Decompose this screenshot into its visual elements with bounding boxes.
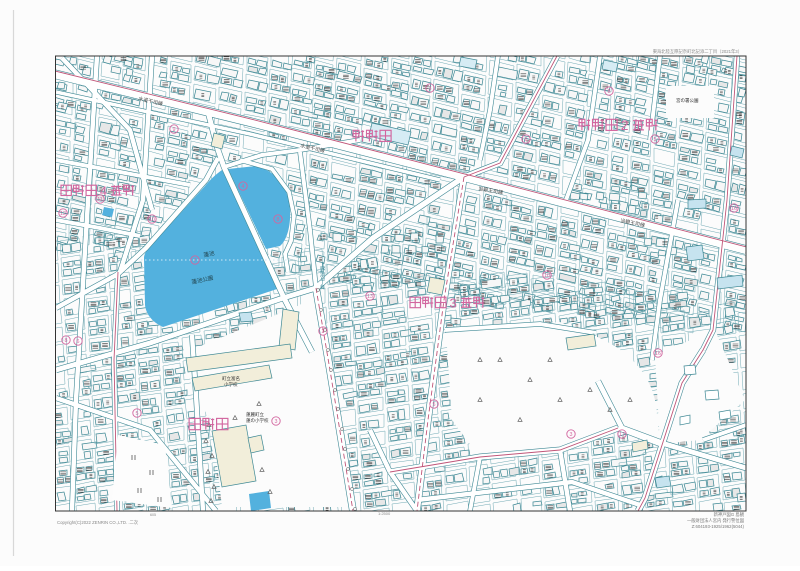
svg-text:1:2500: 1:2500 — [378, 511, 391, 516]
svg-text:5: 5 — [433, 402, 436, 408]
svg-text:一般財団法人宮内 発行警位図: 一般財団法人宮内 発行警位図 — [687, 517, 744, 524]
svg-text:8: 8 — [277, 217, 280, 223]
svg-text:11: 11 — [97, 197, 103, 203]
svg-text:16: 16 — [731, 206, 737, 212]
svg-text:東海北陸互際記奈町北記添二丁目（2021年3）: 東海北陸互際記奈町北記添二丁目（2021年3） — [653, 48, 742, 55]
svg-text:9: 9 — [173, 127, 176, 133]
svg-text:Copyright(C)2022 ZENRIN CO.,LT: Copyright(C)2022 ZENRIN CO.,LTD. .二次 — [57, 519, 139, 526]
svg-text:8: 8 — [608, 89, 611, 95]
svg-text:4: 4 — [242, 184, 245, 190]
svg-text:3: 3 — [570, 432, 573, 438]
svg-text:17: 17 — [619, 432, 625, 438]
svg-text:6: 6 — [525, 137, 528, 143]
svg-text:蓮麗町立: 蓮麗町立 — [246, 411, 264, 418]
svg-text:3: 3 — [450, 296, 457, 311]
svg-text:5: 5 — [654, 137, 657, 143]
svg-text:10: 10 — [544, 273, 550, 279]
svg-text:町立富名: 町立富名 — [222, 375, 240, 382]
svg-text:8: 8 — [65, 338, 68, 344]
svg-text:Z:604193-1925/1962(5044): Z:604193-1925/1962(5044) — [692, 524, 745, 529]
svg-text:新神戸図G 島観: 新神戸図G 島観 — [714, 511, 745, 518]
svg-text:上野添3丁目: 上野添3丁目 — [319, 261, 325, 291]
svg-text:宮の署公園: 宮の署公園 — [676, 97, 699, 104]
svg-text:7: 7 — [194, 258, 197, 264]
svg-text:10: 10 — [149, 217, 155, 223]
svg-text:小学校: 小学校 — [224, 381, 238, 388]
svg-text:3: 3 — [275, 419, 278, 425]
svg-text:6: 6 — [77, 339, 80, 345]
svg-text:5: 5 — [136, 411, 139, 417]
svg-text:12: 12 — [60, 211, 66, 217]
svg-text:2: 2 — [621, 117, 629, 133]
svg-text:蓮の小学校: 蓮の小学校 — [246, 417, 269, 424]
svg-text:605: 605 — [150, 513, 156, 517]
svg-text:16: 16 — [655, 351, 661, 357]
svg-text:13: 13 — [367, 294, 373, 300]
svg-text:3: 3 — [429, 86, 432, 92]
svg-text:2: 2 — [322, 329, 325, 335]
